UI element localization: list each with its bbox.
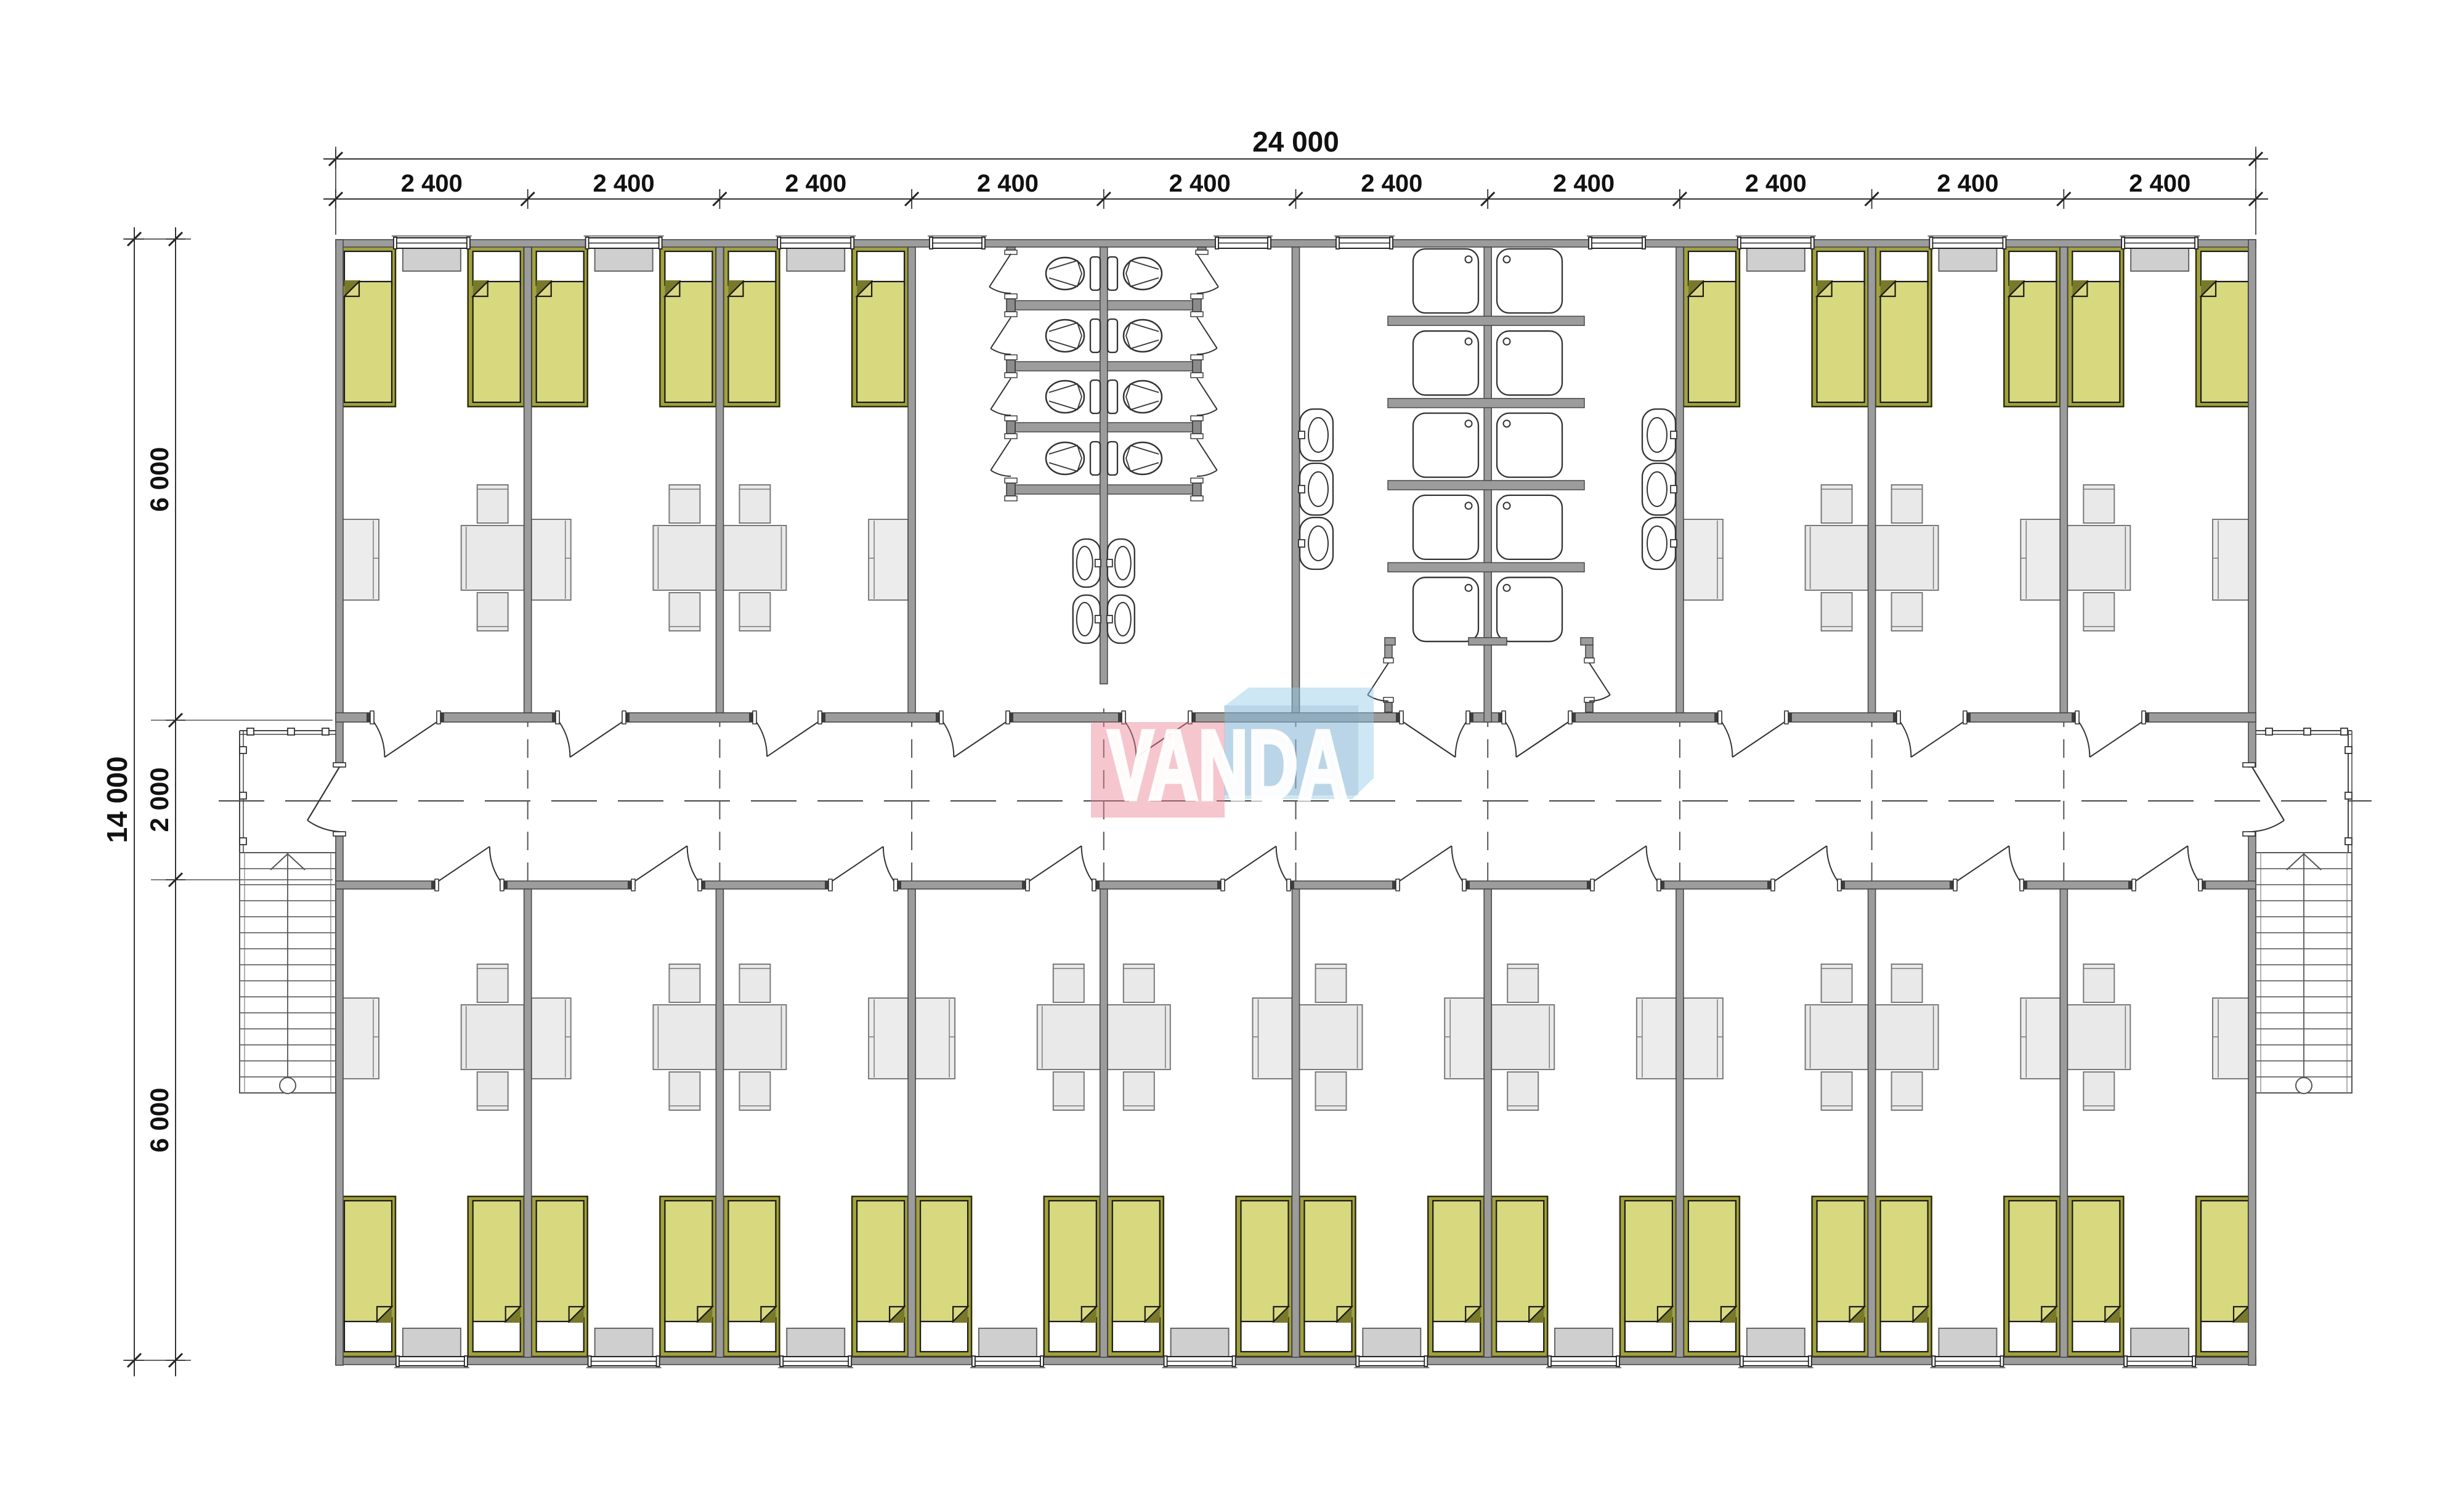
svg-text:2 400: 2 400 [1937,170,1998,197]
svg-text:2 400: 2 400 [1361,170,1422,197]
svg-text:2 400: 2 400 [1745,170,1807,197]
svg-text:6 000: 6 000 [145,1087,174,1152]
svg-text:6 000: 6 000 [145,447,174,511]
svg-text:2 400: 2 400 [1169,170,1231,197]
svg-text:24 000: 24 000 [1252,126,1339,158]
svg-text:2 400: 2 400 [785,170,846,197]
svg-text:2 400: 2 400 [977,170,1039,197]
svg-text:2 400: 2 400 [1553,170,1615,197]
svg-text:2 400: 2 400 [401,170,463,197]
svg-text:2 400: 2 400 [593,170,654,197]
svg-text:2 400: 2 400 [2129,170,2190,197]
svg-text:14 000: 14 000 [101,757,133,843]
svg-text:2 000: 2 000 [145,767,174,832]
svg-text:VANDA: VANDA [1108,710,1348,820]
